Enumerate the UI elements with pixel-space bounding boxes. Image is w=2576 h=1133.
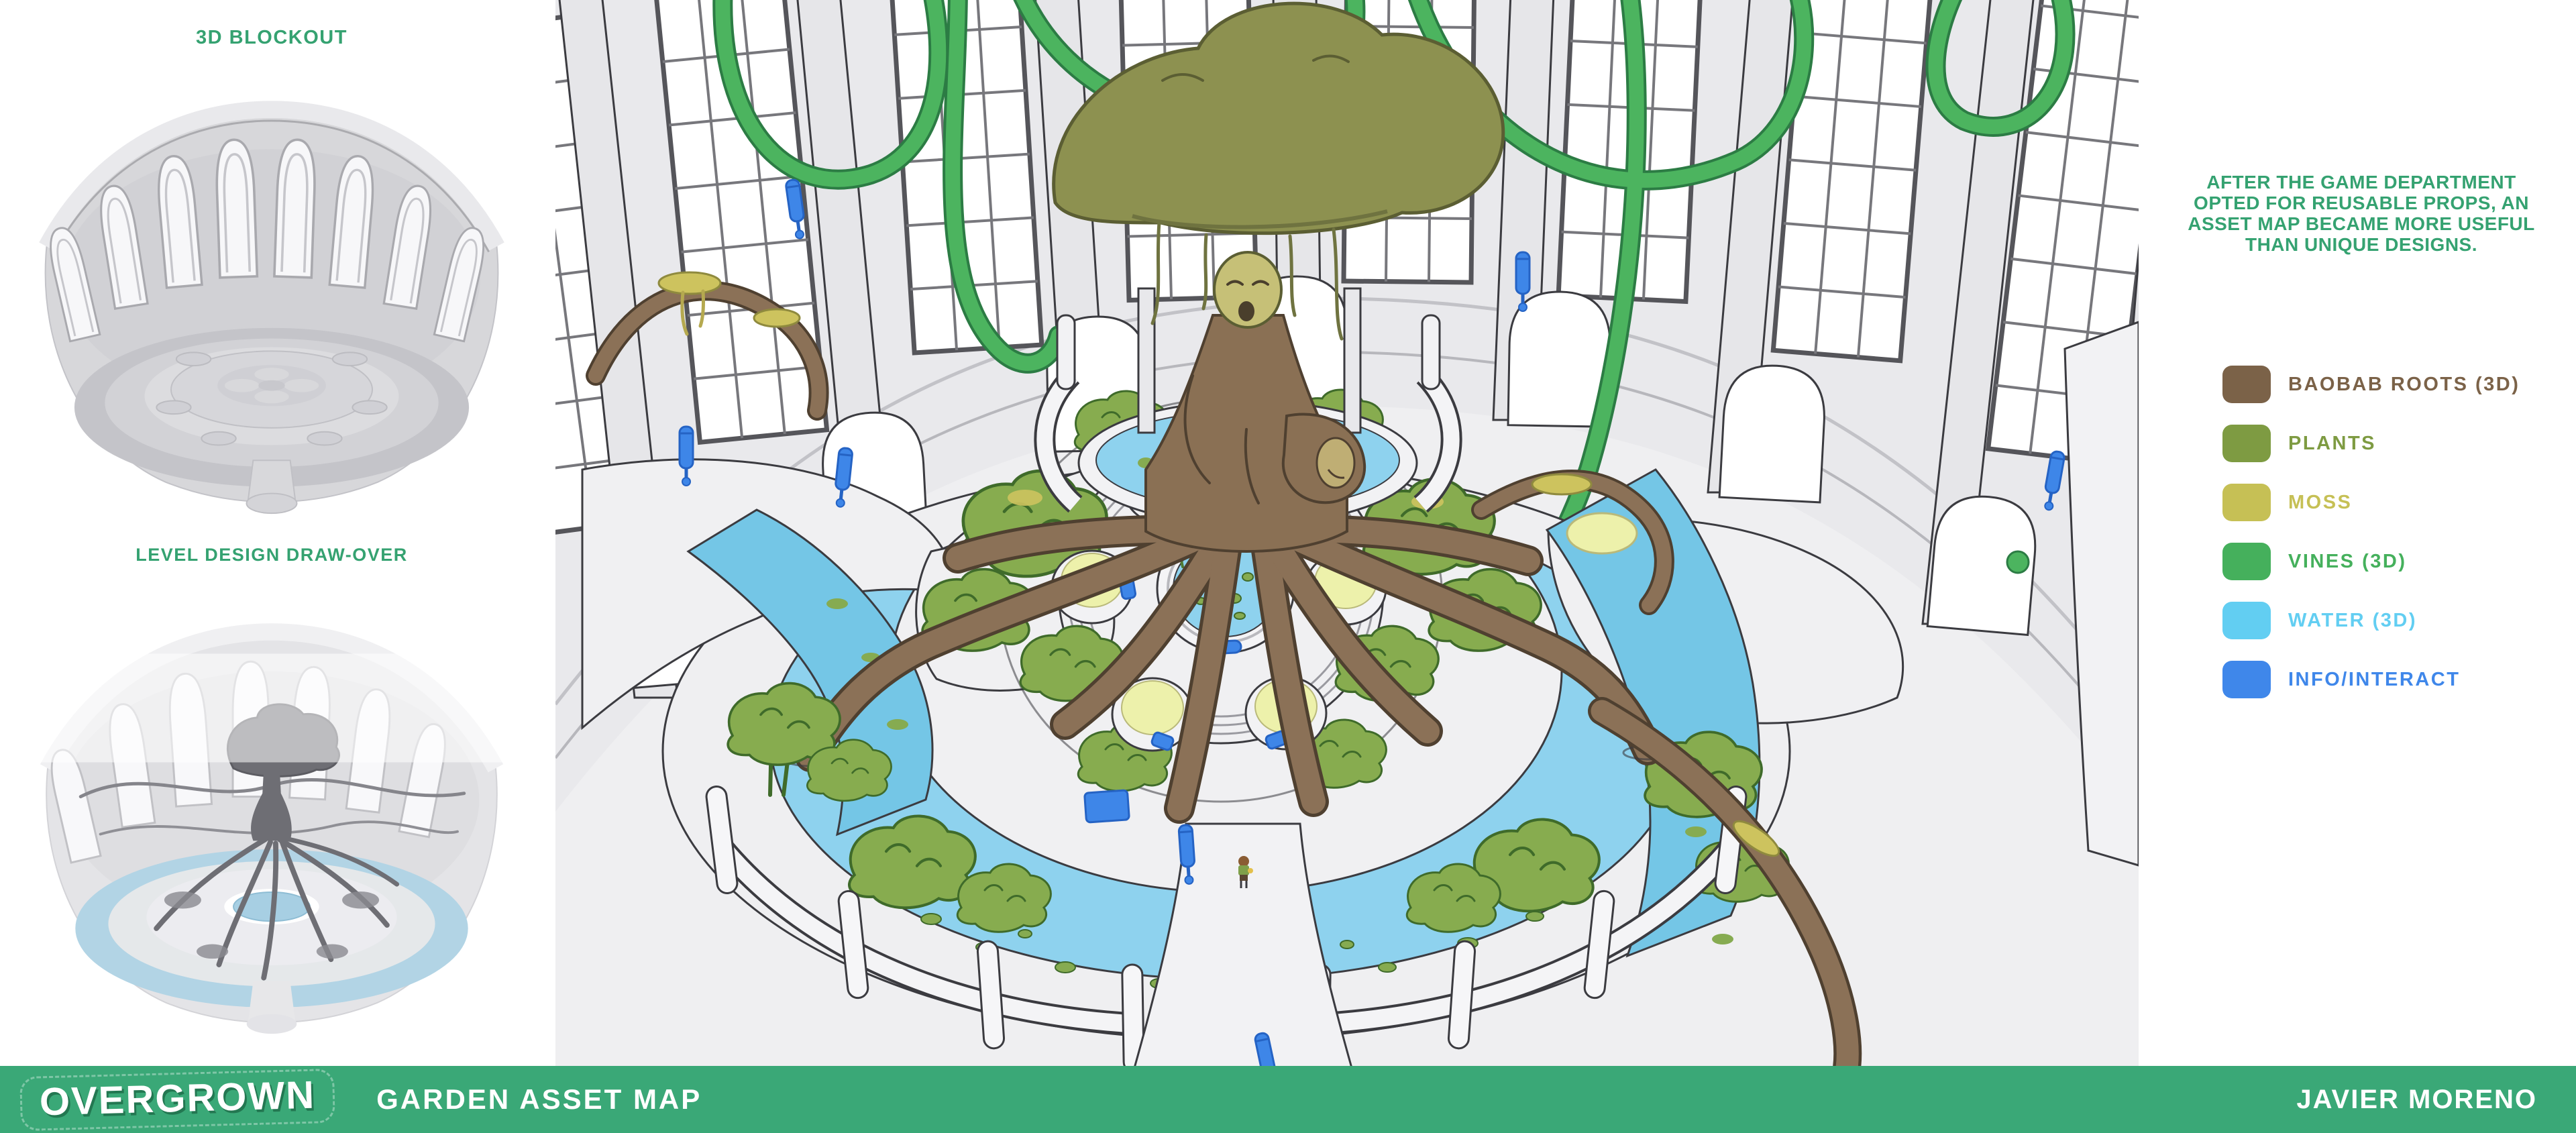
drawover-render (17, 596, 527, 1038)
designer-note: AFTER THE GAME DEPARTMENT OPTED FOR REUS… (2184, 172, 2539, 255)
color-legend: BAOBAB ROOTS (3D) PLANTS MOSS VINES (3D)… (2222, 366, 2520, 720)
blockout-render (20, 72, 523, 519)
asset-map-sheet: 3D BLOCKOUT (0, 0, 2576, 1133)
legend-row-baobab-roots: BAOBAB ROOTS (3D) (2222, 366, 2520, 403)
note-line: OPTED FOR REUSABLE PROPS, AN (2184, 193, 2539, 213)
side-moss-planter (1567, 513, 1637, 553)
garden-illustration (555, 0, 2139, 1067)
legend-row-vines: VINES (3D) (2222, 543, 2520, 580)
author-credit: JAVIER MORENO (2296, 1085, 2537, 1115)
legend-label: VINES (3D) (2288, 551, 2406, 573)
legend-label: INFO/INTERACT (2288, 669, 2460, 691)
legend-swatch (2222, 543, 2271, 580)
legend-label: BAOBAB ROOTS (3D) (2288, 374, 2520, 396)
overgrown-logo: OVERGROWN (19, 1068, 335, 1130)
legend-swatch (2222, 425, 2271, 462)
legend-swatch (2222, 366, 2271, 403)
legend-label: MOSS (2288, 492, 2352, 514)
drawover-label: LEVEL DESIGN DRAW-OVER (20, 545, 523, 565)
legend-row-water: WATER (3D) (2222, 602, 2520, 639)
legend-swatch (2222, 602, 2271, 639)
legend-row-moss: MOSS (2222, 484, 2520, 521)
blockout-bridge (247, 460, 297, 513)
legend-row-info-interact: INFO/INTERACT (2222, 661, 2520, 698)
note-line: ASSET MAP BECAME MORE USEFUL (2184, 213, 2539, 234)
legend-swatch (2222, 661, 2271, 698)
drawover-fade-band (40, 653, 503, 762)
blockout-label: 3D BLOCKOUT (20, 27, 523, 49)
footer-bar: OVERGROWN GARDEN ASSET MAP JAVIER MORENO (0, 1066, 2576, 1133)
legend-label: WATER (3D) (2288, 610, 2417, 632)
sheet-title: GARDEN ASSET MAP (376, 1083, 702, 1116)
note-line: AFTER THE GAME DEPARTMENT (2184, 172, 2539, 193)
note-line: THAN UNIQUE DESIGNS. (2184, 234, 2539, 255)
legend-label: PLANTS (2288, 433, 2376, 455)
legend-row-plants: PLANTS (2222, 425, 2520, 462)
legend-swatch (2222, 484, 2271, 521)
